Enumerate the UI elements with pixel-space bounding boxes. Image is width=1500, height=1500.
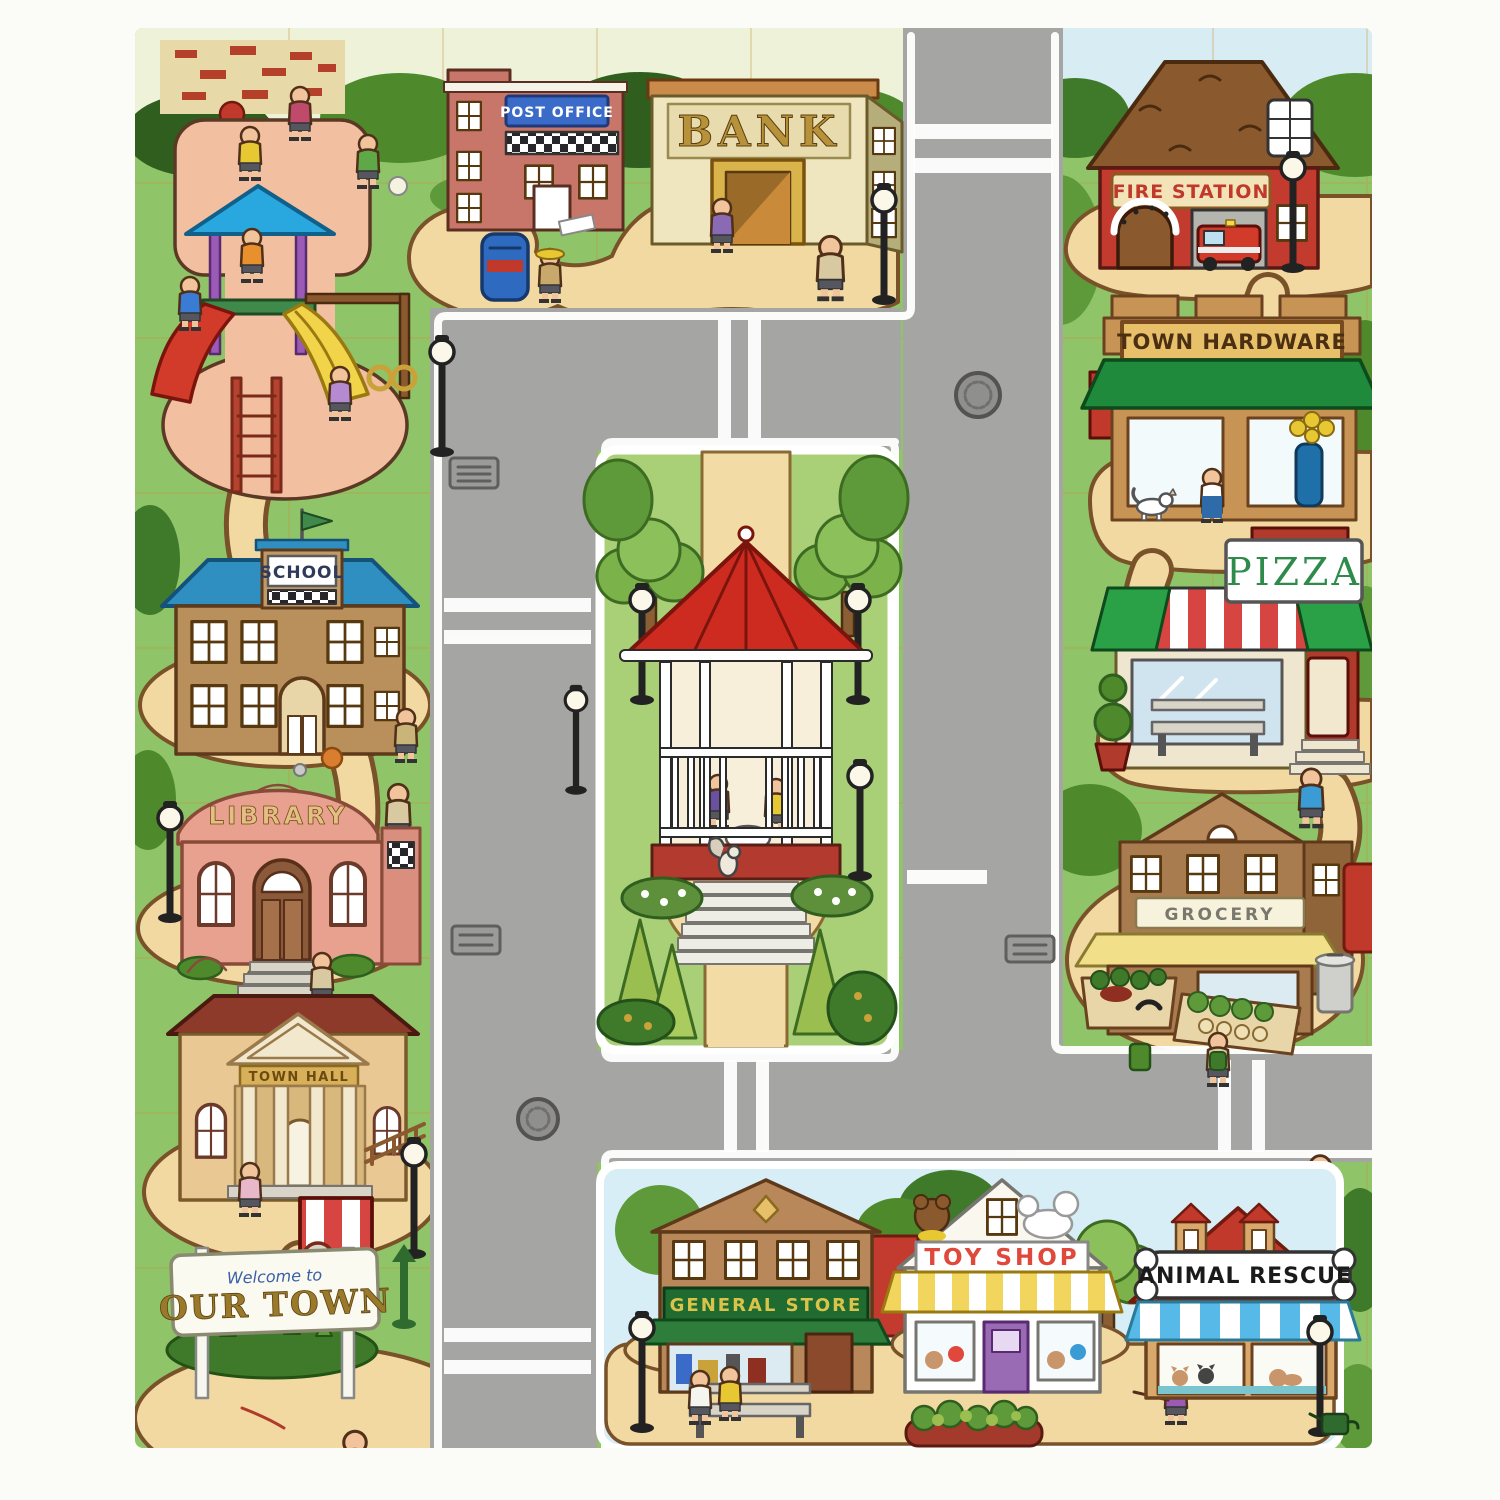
pizza-door <box>1308 658 1348 736</box>
pizza-sign-label: PIZZA <box>1226 550 1362 594</box>
library-sign-label: LIBRARY <box>208 801 348 830</box>
playground <box>152 87 415 499</box>
brick-wall <box>160 40 345 126</box>
town-map-illustration: POST OFFICE BANK <box>0 0 1500 1500</box>
our-town-label: OUR TOWN <box>158 1281 392 1328</box>
post-office-sign-label: POST OFFICE <box>500 105 614 121</box>
trash-can <box>1316 954 1354 1012</box>
pizza-steps <box>1290 740 1370 774</box>
library-door <box>254 860 310 960</box>
topiary <box>1095 675 1131 770</box>
ladder <box>232 378 281 492</box>
animal-rescue-sign-label: ANIMAL RESCUE <box>1138 1264 1352 1289</box>
grocery-canopy <box>1076 934 1344 966</box>
town-park <box>565 450 908 1050</box>
town-hardware-building: TOWN HARDWARE <box>1082 296 1382 523</box>
fire-truck <box>1192 210 1266 271</box>
school-sign-label: SCHOOL <box>260 563 345 583</box>
gazebo-finial <box>739 527 753 541</box>
basketball <box>322 748 342 768</box>
fire-station-door <box>1118 207 1172 268</box>
general-store-door <box>806 1334 852 1392</box>
bank-sign-label: BANK <box>678 107 841 156</box>
toy-shop-sign-label: TOY SHOP <box>924 1245 1079 1271</box>
town-hall-sign-label: TOWN HALL <box>249 1070 350 1085</box>
veggie-planter <box>906 1401 1042 1446</box>
mailbox <box>482 234 528 300</box>
town-hardware-sign-label: TOWN HARDWARE <box>1117 330 1347 354</box>
town-hardware-awning <box>1082 360 1382 408</box>
shopkeeper <box>1201 469 1223 523</box>
general-store-sign-label: GENERAL STORE <box>670 1295 863 1316</box>
our-town-playmat: POST OFFICE BANK <box>0 0 1500 1500</box>
bone-sign: ANIMAL RESCUE <box>1135 1249 1355 1301</box>
grocery-sign-label: GROCERY <box>1164 905 1275 925</box>
toy-shop-awning <box>882 1272 1122 1312</box>
